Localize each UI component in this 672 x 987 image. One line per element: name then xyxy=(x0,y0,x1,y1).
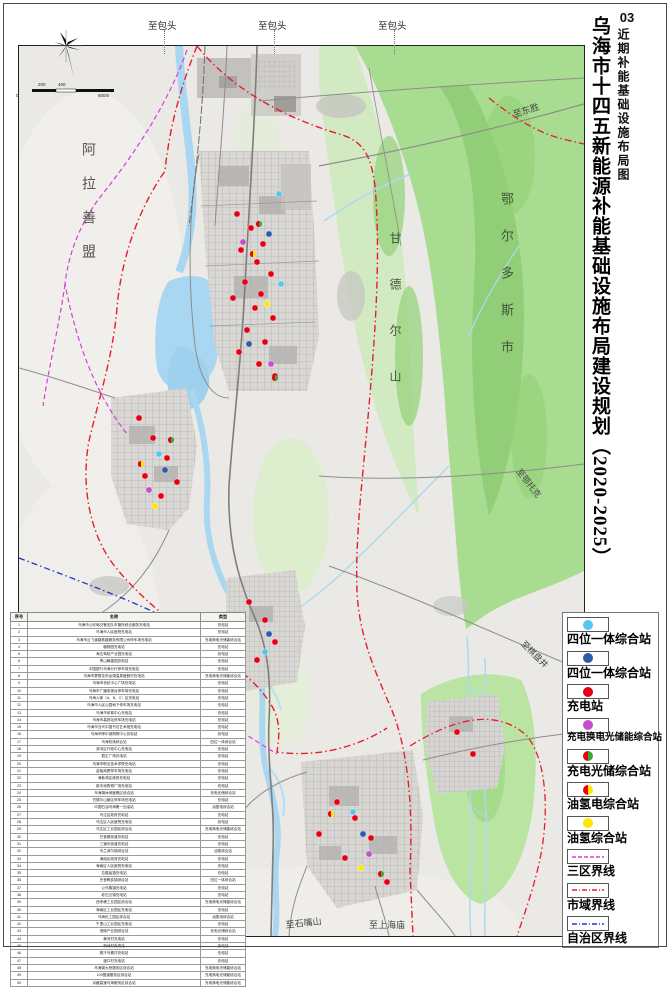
table-row: 28乌达区人民医院充电站充电站 xyxy=(11,819,246,826)
table-cell: 充电站 xyxy=(201,622,246,629)
table-cell: 海南区政府充电站 xyxy=(28,855,201,862)
table-row: 42千里山工业园区充电站充电站 xyxy=(11,921,246,928)
table-cell: 四位一体综合站 xyxy=(201,738,246,745)
table-cell: 充电站 xyxy=(201,716,246,723)
table-cell: 中国银行乌海分行停车场充电站 xyxy=(28,665,201,672)
table-row: 10乌海市广播电视台停车场充电站充电站 xyxy=(11,687,246,694)
table-cell: 48 xyxy=(11,964,28,971)
table-cell: 24 xyxy=(11,789,28,796)
table-row: 29乌达区工业园区综合站充电换电光储能综合站 xyxy=(11,826,246,833)
station-dot-blue4in1 xyxy=(266,631,272,637)
table-cell: 充电换电光储能综合站 xyxy=(201,826,246,833)
table-cell: 35 xyxy=(11,870,28,877)
station-dot-charge xyxy=(262,339,268,345)
table-cell: 充电站 xyxy=(201,709,246,716)
legend-dot-icon xyxy=(583,653,593,663)
station-dot-charge xyxy=(248,225,254,231)
table-cell: 12 xyxy=(11,702,28,709)
table-row: 43低碳产业园综合站充电光储综合站 xyxy=(11,928,246,935)
table-cell: 39 xyxy=(11,899,28,906)
table-cell: 乌达区政府充电站 xyxy=(28,811,201,818)
table-row: 15乌海市当代中国书法艺术馆充电站充电站 xyxy=(11,724,246,731)
table-cell: 四位一体综合站 xyxy=(201,877,246,884)
table-cell: 充电站 xyxy=(201,746,246,753)
table-row: 35拉僧庙镇充电站充电站 xyxy=(11,870,246,877)
table-cell: 乌达区工业园区综合站 xyxy=(28,826,201,833)
edge-label: 至包头 xyxy=(148,18,177,32)
legend-dot-icon xyxy=(583,687,593,697)
scale-tick-label: 0 xyxy=(16,93,19,98)
table-cell: 乌海湖休闲度假区综合站 xyxy=(28,789,201,796)
table-cell: 8 xyxy=(11,673,28,680)
edge-tick xyxy=(164,30,165,54)
table-cell: 21 xyxy=(11,767,28,774)
station-dot-chargepv xyxy=(168,437,174,443)
table-row: 14乌海市高铁站停车场充电站充电站 xyxy=(11,716,246,723)
table-row: 6青山翰墨园充电站充电站 xyxy=(11,658,246,665)
table-cell: 20 xyxy=(11,760,28,767)
station-dot-charge xyxy=(234,211,240,217)
legend-split-dot-icon xyxy=(583,785,593,795)
project-table-body: 1乌海市公安局交警支队车管所综合服务充电站充电站2乌海市人民医院充电站充电站3乌… xyxy=(11,622,246,987)
station-dot-charge xyxy=(352,815,358,821)
table-row: 33海南区政府充电站充电站 xyxy=(11,855,246,862)
table-cell: 22 xyxy=(11,775,28,782)
table-cell: 充电站 xyxy=(201,840,246,847)
table-cell: 充电换电光储能综合站 xyxy=(201,972,246,979)
station-dot-charge xyxy=(342,855,348,861)
table-row: 47渡口村充电站充电站 xyxy=(11,957,246,964)
table-cell: 充电站 xyxy=(201,767,246,774)
table-row: 44黄河村充电站充电站 xyxy=(11,935,246,942)
table-cell: 乌兰淖尔镇综合站 xyxy=(28,848,201,855)
table-cell: 16 xyxy=(11,731,28,738)
table-cell: 青山翰墨园充电站 xyxy=(28,658,201,665)
table-row: 1乌海市公安局交警支队车管所综合服务充电站充电站 xyxy=(11,622,246,629)
station-dot-charge xyxy=(258,291,264,297)
table-cell: 充电站 xyxy=(201,884,246,891)
table-cell: 乌海市体育中心充电站 xyxy=(28,709,201,716)
table-cell: 三道坎街道充电站 xyxy=(28,840,201,847)
table-cell: 拉僧庙镇充电站 xyxy=(28,870,201,877)
table-row: 8乌海市蒙根花布龙湖温泉度假村充电站充电换电光储能综合站 xyxy=(11,673,246,680)
legend-label: 充电站 xyxy=(567,700,655,712)
station-dot-charge xyxy=(150,435,156,441)
edge-tick xyxy=(394,30,395,54)
table-row: 26中国石油乌海第一加油站油氢电综合站 xyxy=(11,804,246,811)
station-dot-charge xyxy=(254,657,260,663)
table-cell: 充电站 xyxy=(201,943,246,950)
table-cell: 充电站 xyxy=(201,651,246,658)
table-cell: 49 xyxy=(11,972,28,979)
table-header-cell: 类型 xyxy=(201,613,246,622)
table-row: 16乌海市摩尔城购物中心充电站充电站 xyxy=(11,731,246,738)
scale-bar xyxy=(16,82,126,98)
station-dot-charge xyxy=(384,879,390,885)
table-row: 2乌海市人民医院充电站充电站 xyxy=(11,629,246,636)
table-row: 3乌海市云飞道路救援服务有限公司停车场充电站充电换电光储能综合站 xyxy=(11,636,246,643)
table-cell: 新天地购物广场充电站 xyxy=(28,782,201,789)
table-cell: 3 xyxy=(11,636,28,643)
legend-label: 市域界线 xyxy=(567,899,655,911)
station-dot-charge xyxy=(142,473,148,479)
station-dot-chargepv xyxy=(272,375,278,381)
scale-tick-label: 400 xyxy=(58,82,66,87)
table-cell: 14 xyxy=(11,716,28,723)
table-cell: 充电站 xyxy=(201,891,246,898)
table-row: 5海达驾校产业园充电站充电站 xyxy=(11,651,246,658)
legend-item: 四位一体综合站 xyxy=(567,617,655,645)
table-cell: 11 xyxy=(11,694,28,701)
table-row: 22海勃湾区政府充电站充电站 xyxy=(11,775,246,782)
table-cell: 充电站 xyxy=(201,819,246,826)
table-cell: 京藏高速乌海服务区综合站 xyxy=(28,979,201,986)
table-row: 7中国银行乌海分行停车场充电站充电站 xyxy=(11,665,246,672)
table-cell: 充电站 xyxy=(201,855,246,862)
station-dot-charge xyxy=(254,259,260,265)
table-row: 48乌海湖大桥服务区综合站充电换电光储能综合站 xyxy=(11,964,246,971)
table-cell: 充电站 xyxy=(201,665,246,672)
table-row: 41乌海化工园区综合站油氢电综合站 xyxy=(11,913,246,920)
legend-dot-icon xyxy=(583,620,593,630)
legend-split-dot-icon xyxy=(583,751,593,761)
table-cell: 油氢电综合站 xyxy=(201,804,246,811)
table-row: 11乌海人家（A、B、C）区充电站充电站 xyxy=(11,694,246,701)
table-cell: 巴音陶亥镇综合站 xyxy=(28,877,201,884)
table-row: 45新地村充电站充电站 xyxy=(11,943,246,950)
legend-symbol xyxy=(567,651,609,666)
table-cell: 43 xyxy=(11,928,28,935)
table-cell: 44 xyxy=(11,935,28,942)
table-cell: 滨河区行政中心充电站 xyxy=(28,746,201,753)
legend-item: 自治区界线 xyxy=(567,916,655,944)
table-row: 40海南区工业园区充电站充电站 xyxy=(11,906,246,913)
legend-box: 四位一体综合站四位一体综合站充电站充电换电光储能综合站充电光储综合站油氢电综合站… xyxy=(562,612,659,948)
station-dot-oilh2e xyxy=(250,251,256,257)
table-cell: 13 xyxy=(11,709,28,716)
table-cell: 27 xyxy=(11,811,28,818)
station-dot-charge xyxy=(136,415,142,421)
legend-symbol xyxy=(567,883,609,898)
table-cell: 30 xyxy=(11,833,28,840)
station-dot-chargeswap xyxy=(146,487,152,493)
station-dot-charge xyxy=(174,479,180,485)
table-row: 38老石旦镇充电站充电站 xyxy=(11,891,246,898)
table-cell: 充电站 xyxy=(201,935,246,942)
table-cell: 充电站 xyxy=(201,775,246,782)
table-cell: 50 xyxy=(11,979,28,986)
table-row: 13乌海市体育中心充电站充电站 xyxy=(11,709,246,716)
table-cell: 充电站 xyxy=(201,753,246,760)
legend-label: 充电光储综合站 xyxy=(567,765,655,777)
table-cell: 乌海市人民医院充电站 xyxy=(28,629,201,636)
table-cell: 充电站 xyxy=(201,950,246,957)
station-dot-charge xyxy=(262,617,268,623)
scale-tick-label: 800m xyxy=(98,93,109,98)
station-dot-charge xyxy=(242,279,248,285)
station-dot-blue4in1 xyxy=(360,831,366,837)
table-row: 49109国道服务区综合站充电换电光储能综合站 xyxy=(11,972,246,979)
station-dot-blue4in1 xyxy=(266,231,272,237)
table-cell: 老石旦镇充电站 xyxy=(28,891,201,898)
table-cell: 34 xyxy=(11,862,28,869)
edge-tick xyxy=(274,30,275,54)
project-table: 序号名称类型 1乌海市公安局交警支队车管所综合服务充电站充电站2乌海市人民医院充… xyxy=(10,612,246,987)
legend-label: 四位一体综合站 xyxy=(567,667,655,679)
table-cell: 31 xyxy=(11,840,28,847)
station-dot-cyan4in1 xyxy=(350,809,356,815)
table-cell: 低碳产业园综合站 xyxy=(28,928,201,935)
table-cell: 千里山工业园区充电站 xyxy=(28,921,201,928)
station-dot-charge xyxy=(270,315,276,321)
table-cell: 15 xyxy=(11,724,28,731)
table-cell: 油氢电综合站 xyxy=(201,913,246,920)
station-dot-cyan4in1 xyxy=(156,451,162,457)
table-cell: 充电站 xyxy=(201,629,246,636)
table-cell: 109国道服务区综合站 xyxy=(28,972,201,979)
table-header-cell: 序号 xyxy=(11,613,28,622)
table-cell: 37 xyxy=(11,884,28,891)
table-row: 12乌海市人民公园地下停车场充电站充电站 xyxy=(11,702,246,709)
table-cell: 23 xyxy=(11,782,28,789)
station-dot-charge xyxy=(236,349,242,355)
table-cell: 42 xyxy=(11,921,28,928)
station-dot-charge xyxy=(164,455,170,461)
table-row: 50京藏高速乌海服务区综合站充电换电光储能综合站 xyxy=(11,979,246,986)
table-row: 20乌海市职业技术学院充电站充电站 xyxy=(11,760,246,767)
station-dot-charge xyxy=(238,247,244,253)
table-cell: 38 xyxy=(11,891,28,898)
legend-items: 四位一体综合站四位一体综合站充电站充电换电光储能综合站充电光储综合站油氢电综合站… xyxy=(567,617,655,944)
table-cell: 充电站 xyxy=(201,811,246,818)
legend-line-icon xyxy=(571,920,605,928)
station-dot-charge xyxy=(316,831,322,837)
table-cell: 充电站 xyxy=(201,724,246,731)
legend-symbol xyxy=(567,718,609,733)
legend-label: 充电换电光储能综合站 xyxy=(567,734,655,744)
table-cell: 充电光储综合站 xyxy=(201,789,246,796)
legend-item: 四位一体综合站 xyxy=(567,651,655,679)
station-dot-oilh2e xyxy=(328,811,334,817)
table-cell: 18 xyxy=(11,746,28,753)
table-cell: 10 xyxy=(11,687,28,694)
station-dot-charge xyxy=(268,271,274,277)
legend-symbol xyxy=(567,782,609,797)
sheet-label: 03 近期补能基础设施布局图 xyxy=(615,10,639,182)
station-dot-charge xyxy=(334,799,340,805)
table-cell: 充电换电光储能综合站 xyxy=(201,964,246,971)
station-dot-chargeswap xyxy=(240,239,246,245)
station-dot-blue4in1 xyxy=(162,467,168,473)
table-row: 31三道坎街道充电站充电站 xyxy=(11,840,246,847)
table-cell: 黄河村充电站 xyxy=(28,935,201,942)
station-dot-charge xyxy=(260,241,266,247)
table-cell: 17 xyxy=(11,738,28,745)
table-cell: 46 xyxy=(11,950,28,957)
table-cell: 西来峰工业园区综合站 xyxy=(28,899,201,906)
table-cell: 充电站 xyxy=(201,658,246,665)
table-cell: 植物园充电站 xyxy=(28,643,201,650)
table-cell: 1 xyxy=(11,622,28,629)
table-row: 37公乌素镇充电站充电站 xyxy=(11,884,246,891)
table-row: 30巴音赛街道充电站充电站 xyxy=(11,833,246,840)
table-cell: 33 xyxy=(11,855,28,862)
table-cell: 36 xyxy=(11,877,28,884)
station-dot-blue4in1 xyxy=(246,341,252,347)
station-dot-charge xyxy=(158,493,164,499)
edge-label: 至包头 xyxy=(258,18,287,32)
table-row: 17乌海机场综合站四位一体综合站 xyxy=(11,738,246,745)
legend-label: 油氢综合站 xyxy=(567,832,655,844)
table-cell: 充电站 xyxy=(201,797,246,804)
table-cell: 乌海市公安局交警支队车管所综合服务充电站 xyxy=(28,622,201,629)
table-cell: 40 xyxy=(11,906,28,913)
table-row: 25甘德尔山景区停车场充电站充电站 xyxy=(11,797,246,804)
table-cell: 君正广场充电站 xyxy=(28,753,201,760)
north-compass-icon xyxy=(48,30,84,82)
table-cell: 2 xyxy=(11,629,28,636)
legend-symbol xyxy=(567,617,609,632)
table-cell: 41 xyxy=(11,913,28,920)
legend-dot-icon xyxy=(583,720,593,730)
table-row: 36巴音陶亥镇综合站四位一体综合站 xyxy=(11,877,246,884)
station-dot-charge xyxy=(272,639,278,645)
table-cell: 25 xyxy=(11,797,28,804)
scale-tick-label: 200 xyxy=(38,82,46,87)
legend-symbol xyxy=(567,749,609,764)
sheet-number: 03 xyxy=(615,10,639,25)
legend-item: 充电站 xyxy=(567,684,655,712)
table-header-cell: 名称 xyxy=(28,613,201,622)
table-cell: 28 xyxy=(11,819,28,826)
legend-item: 市域界线 xyxy=(567,883,655,911)
legend-label: 自治区界线 xyxy=(567,932,655,944)
table-cell: 充电站 xyxy=(201,957,246,964)
table-cell: 充电站 xyxy=(201,643,246,650)
legend-label: 四位一体综合站 xyxy=(567,633,655,645)
legend-symbol xyxy=(567,916,609,931)
station-dot-charge xyxy=(454,729,460,735)
table-cell: 充电换电光储能综合站 xyxy=(201,636,246,643)
station-dot-cyan4in1 xyxy=(262,649,268,655)
project-table-head: 序号名称类型 xyxy=(11,613,246,622)
legend-label: 三区界线 xyxy=(567,865,655,877)
legend-symbol xyxy=(567,816,609,831)
sheet-title: 近期补能基础设施布局图 xyxy=(615,28,632,182)
table-cell: 26 xyxy=(11,804,28,811)
table-cell: 乌海湖大桥服务区综合站 xyxy=(28,964,201,971)
table-cell: 充电光储综合站 xyxy=(201,928,246,935)
legend-item: 油氢电综合站 xyxy=(567,782,655,810)
table-cell: 乌海化工园区综合站 xyxy=(28,913,201,920)
legend-symbol xyxy=(567,684,609,699)
station-dot-chargeswap xyxy=(268,361,274,367)
table-cell: 9 xyxy=(11,680,28,687)
table-cell: 油氢综合站 xyxy=(201,848,246,855)
legend-item: 充电换电光储能综合站 xyxy=(567,718,655,744)
table-cell: 乌海市当代中国书法艺术馆充电站 xyxy=(28,724,201,731)
table-cell: 海达驾校产业园充电站 xyxy=(28,651,201,658)
table-row: 18滨河区行政中心充电站充电站 xyxy=(11,746,246,753)
table-row: 27乌达区政府充电站充电站 xyxy=(11,811,246,818)
table-cell: 7 xyxy=(11,665,28,672)
table-cell: 47 xyxy=(11,957,28,964)
legend-item: 充电光储综合站 xyxy=(567,749,655,777)
table-cell: 32 xyxy=(11,848,28,855)
table-cell: 海南区人民医院充电站 xyxy=(28,862,201,869)
legend-dot-icon xyxy=(583,818,593,828)
table-cell: 乌海市广播电视台停车场充电站 xyxy=(28,687,201,694)
station-dot-charge xyxy=(368,835,374,841)
station-dot-charge xyxy=(252,305,258,311)
station-dot-chargepv xyxy=(256,221,262,227)
table-cell: 充电换电光储能综合站 xyxy=(201,673,246,680)
table-row: 46赛汗乌素村充电站充电站 xyxy=(11,950,246,957)
table-header-row: 序号名称类型 xyxy=(11,613,246,622)
edge-label: 至包头 xyxy=(378,18,407,32)
table-cell: 19 xyxy=(11,753,28,760)
station-dot-charge xyxy=(470,751,476,757)
table-cell: 乌海市蒙根花布龙湖温泉度假村充电站 xyxy=(28,673,201,680)
table-row: 4植物园充电站充电站 xyxy=(11,643,246,650)
table-cell: 充电换电光储能综合站 xyxy=(201,979,246,986)
table-cell: 充电换电光储能综合站 xyxy=(201,899,246,906)
legend-item: 油氢综合站 xyxy=(567,816,655,844)
table-row: 39西来峰工业园区综合站充电换电光储能综合站 xyxy=(11,899,246,906)
station-dot-chargepv xyxy=(378,871,384,877)
table-cell: 6 xyxy=(11,658,28,665)
table-row: 9乌海市世纪中心广场充电站充电站 xyxy=(11,680,246,687)
top-edge-labels: 至包头至包头至包头 xyxy=(0,0,672,45)
table-cell: 乌达区人民医院充电站 xyxy=(28,819,201,826)
station-dot-oilh2e xyxy=(138,461,144,467)
station-dot-charge xyxy=(230,295,236,301)
station-dot-charge xyxy=(256,361,262,367)
table-row: 32乌兰淖尔镇综合站油氢综合站 xyxy=(11,848,246,855)
table-cell: 充电站 xyxy=(201,782,246,789)
table-cell: 乌海机场综合站 xyxy=(28,738,201,745)
table-cell: 中国石油乌海第一加油站 xyxy=(28,804,201,811)
legend-label: 油氢电综合站 xyxy=(567,798,655,810)
table-cell: 充电站 xyxy=(201,702,246,709)
legend-line-icon xyxy=(571,853,605,861)
station-dot-oilh2 xyxy=(264,301,270,307)
station-dot-cyan4in1 xyxy=(278,281,284,287)
table-cell: 公乌素镇充电站 xyxy=(28,884,201,891)
table-cell: 充电站 xyxy=(201,833,246,840)
table-cell: 45 xyxy=(11,943,28,950)
table-cell: 渡口村充电站 xyxy=(28,957,201,964)
table-cell: 充电站 xyxy=(201,760,246,767)
table-cell: 充电站 xyxy=(201,680,246,687)
table-row: 24乌海湖休闲度假区综合站充电光储综合站 xyxy=(11,789,246,796)
table-cell: 乌海人家（A、B、C）区充电站 xyxy=(28,694,201,701)
station-dot-charge xyxy=(246,599,252,605)
station-dot-cyan4in1 xyxy=(276,191,282,197)
table-cell: 充电站 xyxy=(201,862,246,869)
station-dot-oilh2 xyxy=(358,865,364,871)
table-cell: 5 xyxy=(11,651,28,658)
table-cell: 乌海市职业技术学院充电站 xyxy=(28,760,201,767)
table-cell: 甘德尔山景区停车场充电站 xyxy=(28,797,201,804)
table-cell: 乌海市摩尔城购物中心充电站 xyxy=(28,731,201,738)
table-cell: 海勃湾区政府充电站 xyxy=(28,775,201,782)
table-cell: 乌海市云飞道路救援服务有限公司停车场充电站 xyxy=(28,636,201,643)
table-cell: 充电站 xyxy=(201,906,246,913)
legend-symbol xyxy=(567,849,609,864)
table-cell: 金裕商厦停车场充电站 xyxy=(28,767,201,774)
table-cell: 新地村充电站 xyxy=(28,943,201,950)
